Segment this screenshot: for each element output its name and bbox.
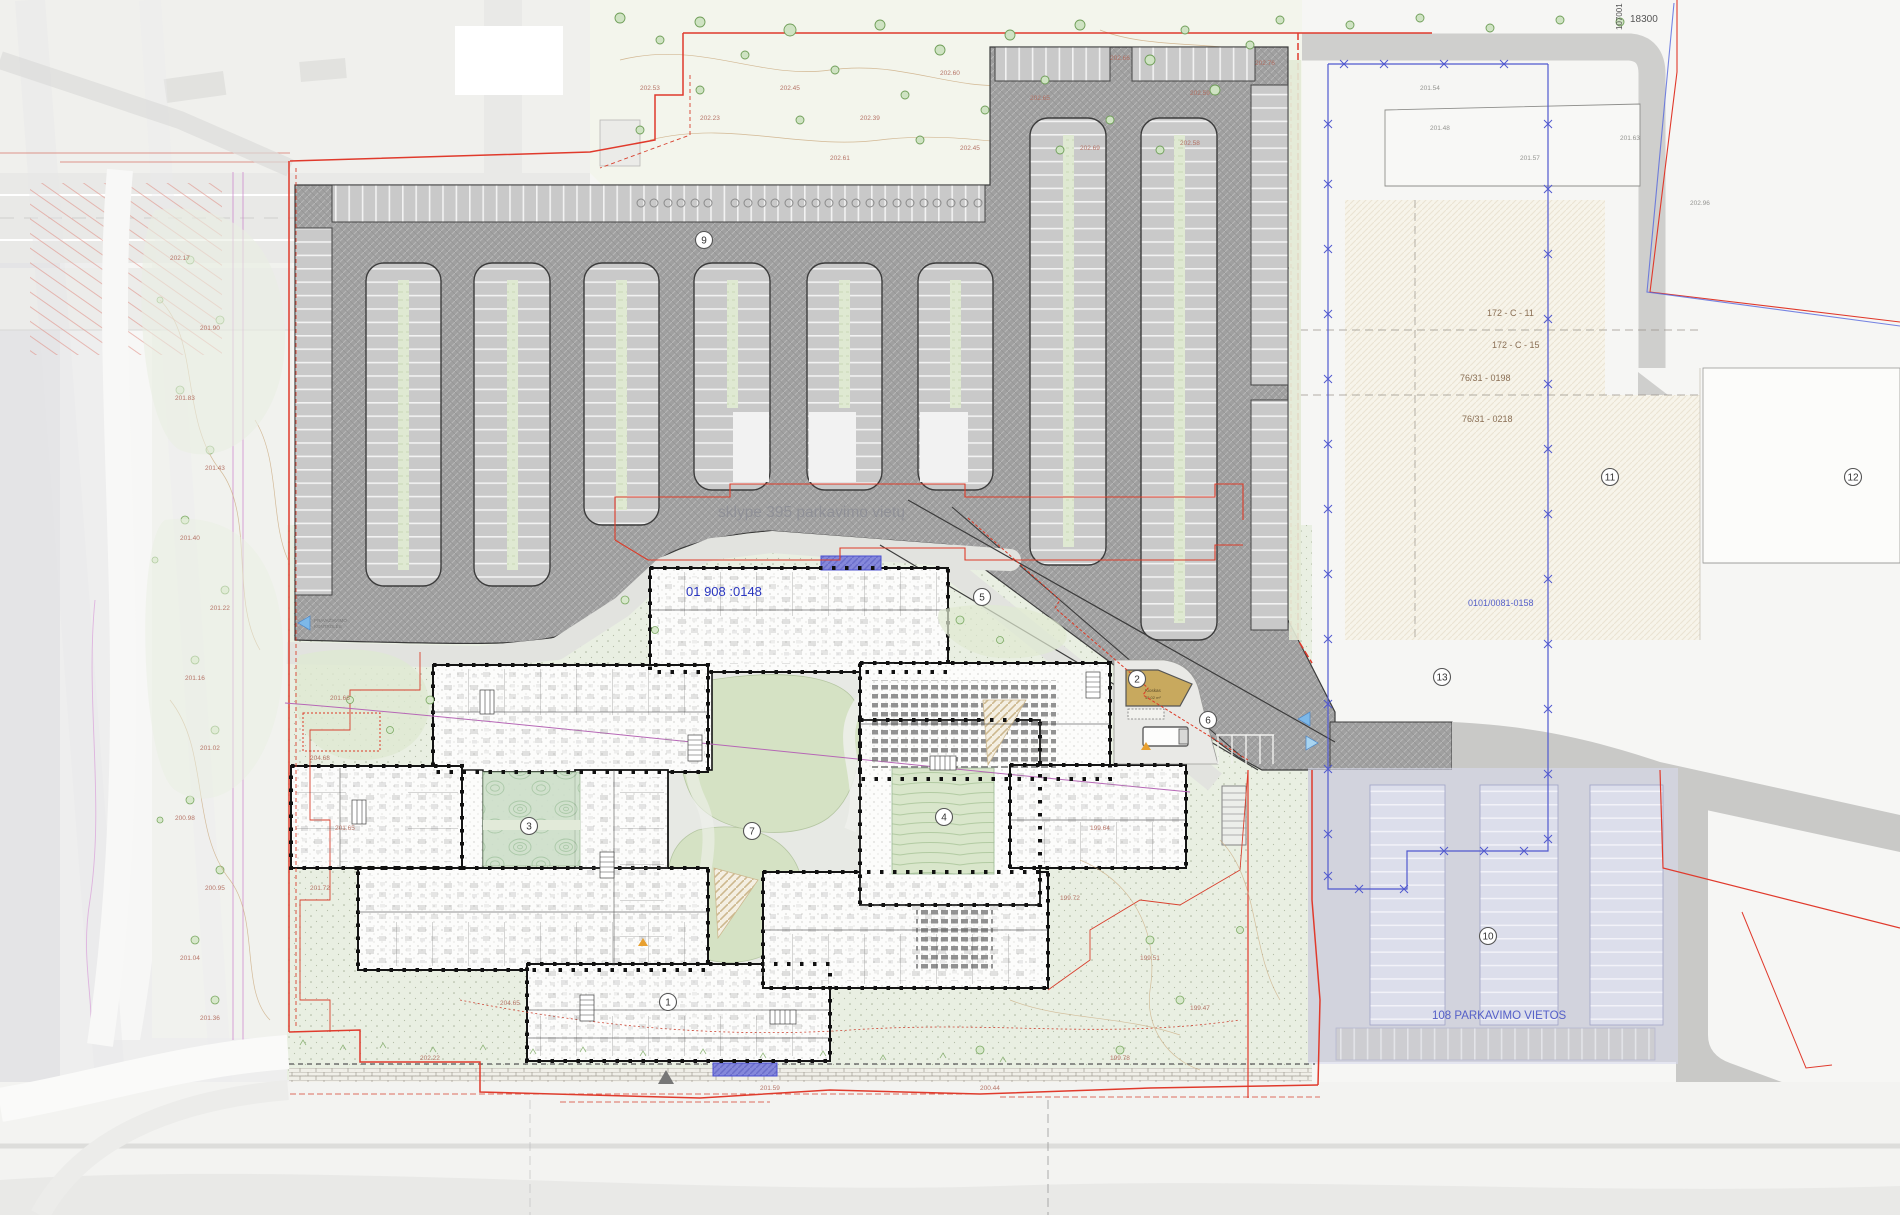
svg-text:201.16: 201.16 — [185, 675, 205, 682]
svg-text:202.65: 202.65 — [1030, 95, 1050, 102]
svg-text:201.22: 201.22 — [210, 605, 230, 612]
svg-text:202.59: 202.59 — [1190, 90, 1210, 97]
svg-text:202.58: 202.58 — [1180, 140, 1200, 147]
svg-text:199.78: 199.78 — [1110, 1055, 1130, 1062]
svg-text:6: 6 — [1205, 716, 1211, 727]
svg-text:201.66: 201.66 — [330, 695, 350, 702]
svg-text:sklype 395 parkavimo vietų: sklype 395 parkavimo vietų — [718, 504, 905, 521]
svg-text:9: 9 — [701, 236, 707, 247]
svg-text:201.36: 201.36 — [200, 1015, 220, 1022]
svg-text:204.65: 204.65 — [500, 1000, 520, 1007]
svg-text:200.44: 200.44 — [980, 1085, 1000, 1092]
svg-text:201.40: 201.40 — [180, 535, 200, 542]
svg-text:202.69: 202.69 — [1080, 145, 1100, 152]
svg-text:45,02 m²: 45,02 m² — [1145, 695, 1161, 700]
svg-text:11: 11 — [1605, 473, 1616, 484]
svg-text:202.60: 202.60 — [940, 70, 960, 77]
svg-text:172 - C - 15: 172 - C - 15 — [1492, 340, 1540, 350]
svg-text:202.45: 202.45 — [780, 85, 800, 92]
svg-text:201.43: 201.43 — [205, 465, 225, 472]
svg-text:12: 12 — [1847, 473, 1859, 484]
svg-text:202.17: 202.17 — [170, 255, 190, 262]
svg-text:200.98: 200.98 — [175, 815, 195, 822]
svg-text:172 - C - 11: 172 - C - 11 — [1487, 308, 1534, 318]
svg-text:1: 1 — [665, 998, 671, 1009]
svg-text:76/31 - 0218: 76/31 - 0218 — [1462, 414, 1513, 424]
svg-text:199.47: 199.47 — [1190, 1005, 1210, 1012]
svg-text:13: 13 — [1436, 673, 1448, 684]
svg-text:0101/0081-0158: 0101/0081-0158 — [1468, 598, 1534, 608]
svg-text:199.64: 199.64 — [1090, 825, 1110, 832]
svg-text:76/31 - 0198: 76/31 - 0198 — [1460, 373, 1511, 383]
svg-text:201.63: 201.63 — [1620, 135, 1640, 142]
svg-text:201.48: 201.48 — [1430, 125, 1450, 132]
svg-text:10: 10 — [1482, 932, 1494, 943]
svg-text:201.90: 201.90 — [200, 325, 220, 332]
svg-text:201.72: 201.72 — [310, 885, 330, 892]
svg-text:4: 4 — [941, 813, 947, 824]
svg-text:199.72: 199.72 — [1060, 895, 1080, 902]
svg-text:107001: 107001 — [1615, 3, 1624, 30]
svg-text:201.57: 201.57 — [1520, 155, 1540, 162]
svg-text:108 PARKAVIMO VIETOS: 108 PARKAVIMO VIETOS — [1432, 1010, 1567, 1022]
svg-text:201.59: 201.59 — [760, 1085, 780, 1092]
svg-text:202.76: 202.76 — [1255, 60, 1275, 67]
svg-text:202.66: 202.66 — [1110, 55, 1130, 62]
svg-text:PRAVAŽIAVIMO: PRAVAŽIAVIMO — [314, 616, 347, 623]
svg-text:202.45: 202.45 — [960, 145, 980, 152]
svg-text:201.83: 201.83 — [175, 395, 195, 402]
svg-text:201.02: 201.02 — [200, 745, 220, 752]
svg-text:5: 5 — [979, 593, 985, 604]
svg-text:202.39: 202.39 — [860, 115, 880, 122]
svg-text:199.51: 199.51 — [1140, 955, 1160, 962]
svg-text:202.23: 202.23 — [700, 115, 720, 122]
svg-text:202.61: 202.61 — [830, 155, 850, 162]
svg-text:201.04: 201.04 — [180, 955, 200, 962]
svg-text:202.96: 202.96 — [1690, 200, 1710, 207]
svg-text:7: 7 — [749, 827, 755, 838]
svg-text:201.54: 201.54 — [1420, 85, 1440, 92]
svg-text:200.95: 200.95 — [205, 885, 225, 892]
svg-text:204.68: 204.68 — [310, 755, 330, 762]
svg-text:3: 3 — [526, 822, 532, 833]
svg-text:202.22: 202.22 — [420, 1055, 440, 1062]
svg-text:201.65: 201.65 — [335, 825, 355, 832]
svg-text:2: 2 — [1134, 675, 1140, 686]
svg-text:KONTROLĖS: KONTROLĖS — [314, 623, 342, 629]
svg-text:202.53: 202.53 — [640, 85, 660, 92]
svg-text:01 908 :0148: 01 908 :0148 — [686, 584, 762, 599]
svg-text:18300: 18300 — [1630, 14, 1658, 25]
